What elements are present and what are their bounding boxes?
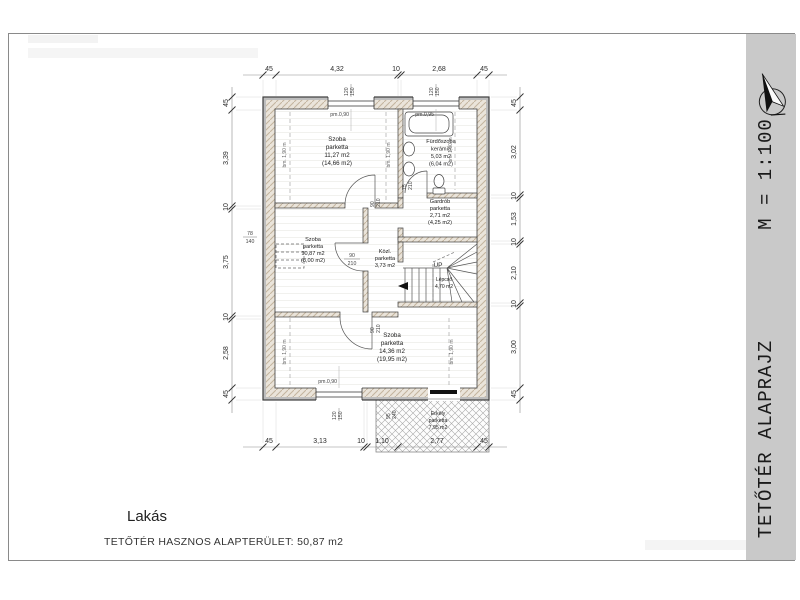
svg-text:10: 10: [511, 192, 518, 200]
svg-text:(4,25 m2): (4,25 m2): [428, 220, 452, 226]
svg-text:3,39: 3,39: [223, 151, 230, 165]
svg-text:2,77: 2,77: [430, 438, 444, 445]
svg-text:10: 10: [392, 66, 400, 73]
svg-text:210: 210: [376, 198, 382, 207]
svg-text:2,68: 2,68: [432, 66, 446, 73]
svg-text:10: 10: [223, 313, 230, 321]
balcony-door-leaf: [430, 390, 457, 394]
svg-text:10: 10: [223, 203, 230, 211]
svg-text:pm.0,90: pm.0,90: [318, 379, 337, 385]
svg-text:78: 78: [247, 231, 253, 237]
svg-text:(8,00 m2): (8,00 m2): [301, 258, 325, 264]
svg-text:10: 10: [357, 438, 365, 445]
drawing-title: TETŐTÉR ALAPRAJZ: [755, 340, 777, 538]
svg-text:11,27 m2: 11,27 m2: [324, 152, 350, 159]
svg-text:bm. 1,90 m: bm. 1,90 m: [449, 339, 455, 364]
svg-text:10,87 m2: 10,87 m2: [301, 251, 324, 257]
svg-text:parketta: parketta: [430, 206, 451, 212]
sink: [404, 142, 415, 156]
svg-text:bm. 1,90 m: bm. 1,90 m: [386, 142, 392, 167]
room-label-lepcso: Lépcső 4,70 m2: [435, 277, 453, 290]
apartment-label: Lakás: [127, 508, 167, 525]
svg-text:7,95 m2: 7,95 m2: [429, 425, 448, 431]
svg-text:45: 45: [511, 390, 518, 398]
svg-text:3,75: 3,75: [223, 255, 230, 269]
svg-text:Szoba: Szoba: [328, 136, 346, 143]
svg-text:parketta: parketta: [303, 244, 324, 250]
svg-text:2,10: 2,10: [511, 266, 518, 280]
svg-text:10: 10: [511, 238, 518, 246]
dim-left: 45 3,39 10 3,75 10 2,58 45: [223, 99, 230, 398]
room-label-erkely: Erkély parketta 7,95 m2: [429, 411, 448, 431]
svg-text:(19,95 m2): (19,95 m2): [377, 356, 407, 363]
title-block: M = 1:100 TETŐTÉR ALAPRAJZ: [746, 34, 796, 560]
svg-text:pm.0,90: pm.0,90: [330, 112, 349, 118]
sink: [404, 162, 415, 176]
drawing-scale: M = 1:100: [755, 118, 777, 230]
usable-area-value: 50,87 m2: [297, 536, 343, 548]
svg-text:bm. 1,90 m: bm. 1,90 m: [282, 339, 288, 364]
svg-text:Szoba: Szoba: [305, 237, 322, 243]
toilet-bowl: [434, 175, 444, 188]
svg-text:(14,66 m2): (14,66 m2): [322, 160, 352, 167]
svg-text:210: 210: [376, 324, 382, 333]
dim-right: 45 3,02 10 1,53 10 2,10 10 3,00 45: [511, 99, 518, 398]
svg-text:45: 45: [511, 99, 518, 107]
svg-text:Szoba: Szoba: [383, 332, 401, 339]
svg-text:140: 140: [246, 239, 255, 245]
svg-text:Erkély: Erkély: [431, 411, 446, 417]
north-arrow-icon: [750, 69, 790, 121]
svg-text:parketta: parketta: [429, 418, 448, 424]
stairs-up-label: UP: [433, 262, 442, 269]
usable-area-line: TETŐTÉR HASZNOS ALAPTERÜLET: 50,87 m2: [104, 536, 343, 548]
svg-text:Lépcső: Lépcső: [436, 277, 452, 283]
svg-text:3,13: 3,13: [313, 438, 327, 445]
svg-text:4,32: 4,32: [330, 66, 344, 73]
svg-text:10: 10: [511, 300, 518, 308]
svg-text:240: 240: [392, 410, 398, 419]
svg-text:4,70 m2: 4,70 m2: [435, 284, 453, 290]
svg-text:45: 45: [265, 66, 273, 73]
svg-text:14,36 m2: 14,36 m2: [379, 348, 405, 355]
usable-area-label: TETŐTÉR HASZNOS ALAPTERÜLET:: [104, 536, 294, 548]
svg-text:3,02: 3,02: [511, 145, 518, 159]
svg-text:2,71 m2: 2,71 m2: [430, 213, 450, 219]
svg-text:2,58: 2,58: [223, 346, 230, 360]
floor-plan: Szoba parketta 11,27 m2 (14,66 m2) Fürdő…: [0, 0, 800, 600]
svg-text:3,00: 3,00: [511, 340, 518, 354]
svg-text:210: 210: [348, 261, 357, 267]
svg-text:1,53: 1,53: [511, 212, 518, 226]
svg-text:45: 45: [223, 99, 230, 107]
toilet-tank: [433, 188, 445, 194]
svg-text:parketta: parketta: [375, 256, 396, 262]
dim-top: 45 4,32 10 2,68 45: [265, 66, 488, 73]
drawing-sheet: Szoba parketta 11,27 m2 (14,66 m2) Fürdő…: [0, 0, 800, 600]
svg-text:90: 90: [349, 253, 355, 259]
svg-text:210: 210: [408, 181, 414, 190]
svg-text:45: 45: [223, 390, 230, 398]
svg-text:parketta: parketta: [326, 144, 349, 151]
svg-text:bm. 1,90 m: bm. 1,90 m: [282, 142, 288, 167]
room-label-gardrob: Gardrób parketta 2,71 m2 (4,25 m2): [428, 199, 452, 226]
svg-text:Gardrób: Gardrób: [430, 199, 451, 205]
svg-text:Közl.: Közl.: [379, 249, 392, 255]
svg-text:bm. 1,90 m: bm. 1,90 m: [448, 137, 454, 162]
svg-text:pm.0,95: pm.0,95: [415, 112, 434, 118]
svg-text:1,10: 1,10: [375, 438, 389, 445]
svg-text:45: 45: [480, 438, 488, 445]
svg-text:45: 45: [480, 66, 488, 73]
svg-text:45: 45: [265, 438, 273, 445]
svg-text:3,73 m2: 3,73 m2: [375, 263, 395, 269]
svg-text:parketta: parketta: [381, 340, 404, 347]
